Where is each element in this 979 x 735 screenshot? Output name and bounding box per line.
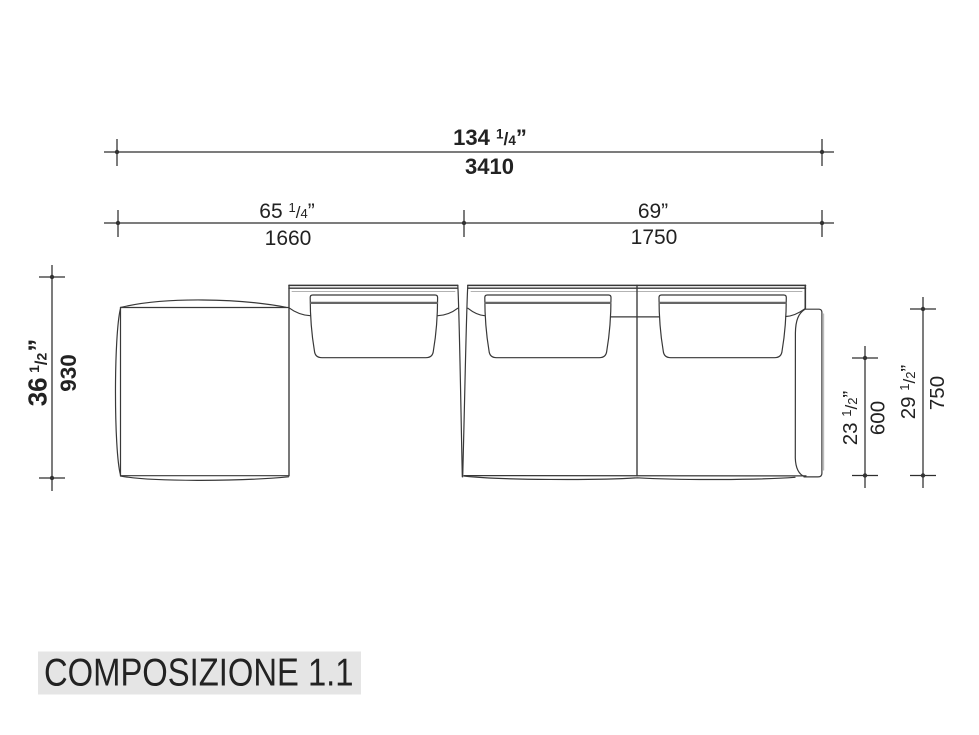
- svg-text:600: 600: [867, 401, 890, 435]
- svg-text:1660: 1660: [265, 227, 312, 250]
- svg-text:COMPOSIZIONE 1.1: COMPOSIZIONE 1.1: [44, 652, 354, 695]
- svg-text:69”: 69”: [638, 200, 668, 223]
- svg-text:1750: 1750: [631, 226, 678, 249]
- svg-text:750: 750: [926, 376, 949, 410]
- svg-text:930: 930: [56, 354, 81, 392]
- svg-text:3410: 3410: [465, 154, 514, 179]
- svg-text:134 1/4”: 134 1/4”: [453, 125, 527, 150]
